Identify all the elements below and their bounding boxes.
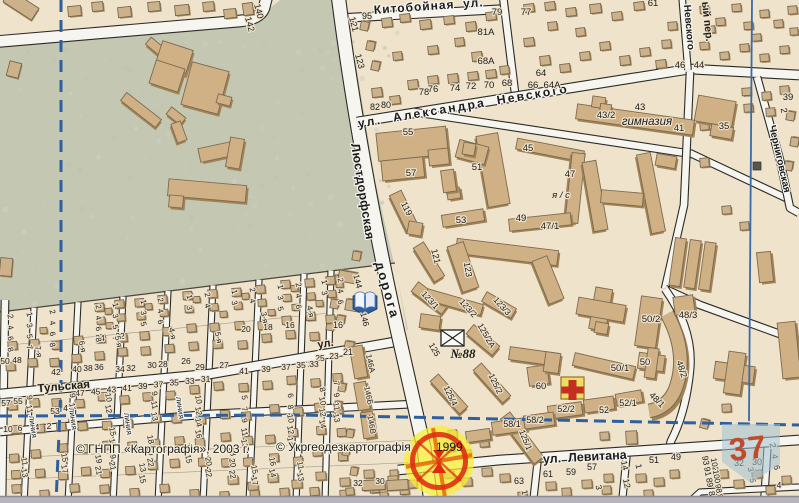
svg-text:64А: 64А	[544, 80, 562, 91]
svg-text:57: 57	[587, 462, 597, 472]
svg-text:49: 49	[516, 213, 527, 224]
svg-text:© Укргеодезкартографія: © Укргеодезкартографія	[276, 440, 411, 454]
svg-text:31: 31	[201, 374, 211, 384]
svg-text:26: 26	[181, 356, 191, 366]
svg-text:16: 16	[285, 320, 295, 330]
svg-text:2: 2	[47, 421, 52, 431]
svg-text:32: 32	[126, 363, 136, 373]
svg-text:59: 59	[566, 467, 576, 477]
svg-text:37: 37	[281, 362, 291, 372]
svg-text:30: 30	[147, 360, 157, 370]
svg-text:28: 28	[158, 359, 168, 369]
svg-text:51: 51	[472, 162, 483, 173]
svg-text:34: 34	[115, 364, 125, 374]
svg-text:27: 27	[219, 360, 229, 370]
svg-text:48/3: 48/3	[679, 310, 698, 321]
svg-text:23: 23	[329, 351, 339, 361]
svg-text:41: 41	[122, 383, 132, 393]
svg-text:81А: 81А	[478, 27, 496, 38]
svg-text:35: 35	[719, 121, 730, 132]
svg-text:46: 46	[675, 60, 686, 71]
svg-text:43: 43	[635, 102, 646, 113]
svg-text:74: 74	[450, 83, 461, 94]
svg-text:58/1: 58/1	[503, 419, 521, 429]
svg-text:35: 35	[296, 360, 306, 370]
svg-text:51: 51	[649, 455, 659, 465]
svg-text:49: 49	[671, 452, 681, 462]
svg-text:18: 18	[263, 322, 273, 332]
svg-text:72: 72	[466, 81, 477, 92]
svg-text:52: 52	[599, 405, 609, 415]
svg-text:30: 30	[375, 476, 385, 486]
svg-text:43/2: 43/2	[597, 110, 616, 121]
svg-text:57: 57	[1, 398, 11, 408]
svg-text:39: 39	[138, 381, 148, 391]
svg-text:57: 57	[406, 168, 417, 179]
svg-text:38: 38	[83, 363, 93, 373]
svg-text:37: 37	[727, 428, 768, 468]
svg-text:77: 77	[521, 7, 532, 18]
svg-text:45: 45	[91, 386, 101, 396]
svg-text:32: 32	[353, 478, 363, 488]
svg-text:1999: 1999	[436, 440, 463, 454]
svg-text:61: 61	[648, 0, 659, 9]
svg-text:35: 35	[169, 378, 179, 388]
svg-text:53: 53	[50, 406, 60, 416]
svg-text:68А: 68А	[478, 56, 496, 67]
svg-text:63: 63	[514, 476, 524, 486]
svg-text:10: 10	[3, 424, 13, 434]
svg-text:я / с: я / с	[551, 190, 570, 201]
svg-text:© ГНПП «Картографія», 2003 г.: © ГНПП «Картографія», 2003 г.	[76, 442, 249, 456]
svg-text:47/1: 47/1	[541, 221, 560, 232]
svg-text:45: 45	[523, 143, 534, 154]
svg-text:40: 40	[72, 364, 82, 374]
svg-text:ул.: ул.	[317, 337, 335, 351]
svg-text:55: 55	[403, 127, 414, 138]
svg-text:41: 41	[239, 366, 249, 376]
svg-text:16: 16	[333, 320, 343, 330]
svg-text:33: 33	[309, 359, 319, 369]
svg-text:42: 42	[51, 367, 61, 377]
svg-text:82: 82	[370, 102, 380, 112]
svg-text:60: 60	[536, 381, 547, 392]
svg-text:50/2: 50/2	[642, 314, 661, 325]
svg-text:21: 21	[343, 347, 353, 357]
svg-text:36: 36	[94, 362, 104, 372]
svg-text:52/2: 52/2	[557, 404, 575, 414]
svg-text:№88: №88	[450, 346, 476, 361]
svg-text:70: 70	[484, 80, 495, 91]
svg-text:47: 47	[565, 169, 576, 180]
svg-text:29: 29	[195, 362, 205, 372]
svg-text:41: 41	[674, 123, 685, 134]
svg-text:52/1: 52/1	[619, 398, 637, 408]
svg-text:66: 66	[528, 80, 539, 91]
svg-text:4: 4	[777, 480, 782, 490]
svg-text:68: 68	[502, 78, 513, 89]
svg-text:50/1: 50/1	[611, 363, 630, 374]
svg-text:55: 55	[13, 396, 23, 406]
svg-text:48: 48	[12, 355, 22, 365]
svg-text:гимназия: гимназия	[622, 116, 672, 128]
svg-text:50: 50	[0, 356, 10, 366]
svg-text:64: 64	[536, 68, 547, 79]
svg-text:95: 95	[362, 11, 372, 21]
svg-text:80: 80	[381, 100, 391, 110]
svg-text:76: 76	[428, 84, 439, 95]
svg-text:37: 37	[154, 379, 164, 389]
svg-text:50: 50	[640, 357, 651, 368]
svg-text:39: 39	[783, 92, 794, 103]
svg-text:39: 39	[261, 364, 271, 374]
svg-text:20: 20	[241, 324, 251, 334]
svg-text:61: 61	[543, 469, 553, 479]
svg-text:53: 53	[456, 215, 467, 226]
svg-text:6: 6	[18, 423, 23, 433]
svg-text:79: 79	[492, 7, 503, 18]
svg-text:44: 44	[694, 60, 705, 71]
svg-text:58/2: 58/2	[526, 415, 544, 425]
svg-text:33: 33	[185, 376, 195, 386]
